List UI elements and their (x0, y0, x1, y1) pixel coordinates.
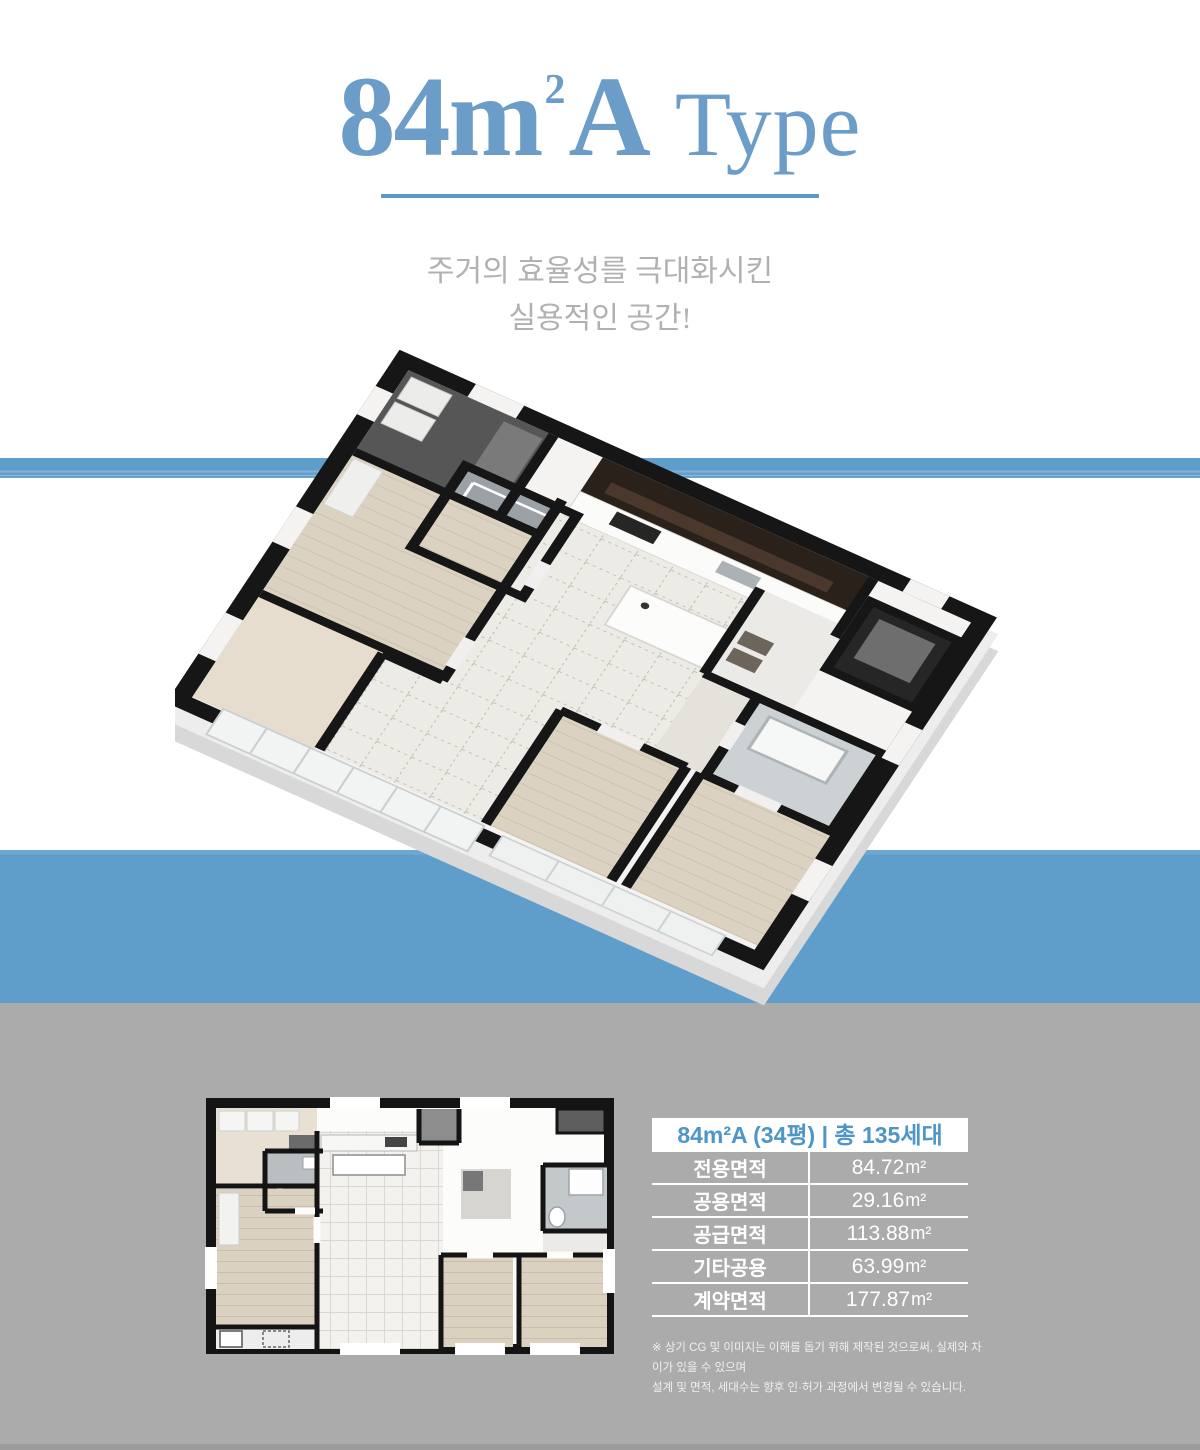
spec-row-value: 113.88m² (808, 1218, 968, 1249)
page-title: 84m2AType (0, 60, 1200, 174)
plan3d-body (175, 360, 984, 977)
spec-row-label: 공용면적 (652, 1186, 808, 1215)
spec-row-value: 29.16m² (808, 1185, 968, 1216)
spec-row-value: 84.72m² (808, 1152, 968, 1183)
pantry-2d (419, 1109, 459, 1143)
spec-table-header-text: 84m²A (34평) | 총 135세대 (677, 1122, 942, 1148)
title-type-label: Type (675, 73, 862, 175)
spec-row-value: 63.99m² (808, 1251, 968, 1282)
spec-row-exclusive: 전용면적 84.72m² (652, 1152, 968, 1185)
spec-row-label: 기타공용 (652, 1252, 808, 1281)
core-2d (557, 1109, 605, 1133)
spec-table: 84m²A (34평) | 총 135세대 전용면적 84.72m² 공용면적 … (652, 1118, 968, 1317)
spec-row-contract: 계약면적 177.87m² (652, 1284, 968, 1317)
spec-row-common: 공용면적 29.16m² (652, 1185, 968, 1218)
spec-row-label: 계약면적 (652, 1285, 808, 1314)
spec-row-value: 177.87m² (808, 1284, 968, 1315)
spec-row-label: 전용면적 (652, 1153, 808, 1182)
spec-value-unit: m² (905, 1190, 926, 1211)
promo-page: 84m2AType 주거의 효율성를 극대화시킨실용적인 공간! (0, 0, 1200, 1450)
spec-value-number: 29.16 (852, 1189, 905, 1213)
bedroom3-2d (521, 1255, 607, 1347)
spec-table-header: 84m²A (34평) | 총 135세대 (652, 1118, 968, 1152)
title-main: 84m (339, 53, 542, 180)
spec-row-label: 공급면적 (652, 1219, 808, 1248)
subtitle-line2: 실용적인 공간! (508, 302, 691, 335)
spec-value-unit: m² (911, 1289, 932, 1310)
spec-value-number: 63.99 (852, 1255, 905, 1279)
floorplan-2d-image (205, 1097, 615, 1361)
disclaimer: ※ 상기 CG 및 이미지는 이해를 돕기 위해 제작된 것으로써, 실제와 차… (652, 1338, 982, 1398)
spec-value-number: 177.87 (846, 1288, 910, 1312)
spec-value-number: 113.88 (847, 1222, 910, 1246)
bottom-edge-strip (0, 1444, 1200, 1450)
spec-value-unit: m² (910, 1223, 931, 1244)
disclaimer-line2: 설계 및 면적, 세대수는 향후 인·허가 과정에서 변경될 수 있습니다. (652, 1378, 982, 1398)
title-superscript: 2 (545, 67, 566, 113)
spec-value-unit: m² (905, 1256, 926, 1277)
island-2d (333, 1155, 405, 1175)
floorplan-3d-image (175, 350, 1005, 1022)
spec-row-other-common: 기타공용 63.99m² (652, 1251, 968, 1284)
disclaimer-line1: ※ 상기 CG 및 이미지는 이해를 돕기 위해 제작된 것으로써, 실제와 차… (652, 1338, 982, 1378)
spec-value-number: 84.72 (852, 1156, 905, 1180)
spec-row-supply: 공급면적 113.88m² (652, 1218, 968, 1251)
subtitle-line1: 주거의 효율성를 극대화시킨 (427, 255, 773, 288)
title-suffix: A (569, 53, 649, 180)
bedroom2-2d (441, 1255, 513, 1347)
title-underline (381, 194, 819, 198)
spec-value-unit: m² (905, 1157, 926, 1178)
page-header: 84m2AType 주거의 효율성를 극대화시킨실용적인 공간! (0, 0, 1200, 342)
subtitle: 주거의 효율성를 극대화시킨실용적인 공간! (0, 248, 1200, 342)
